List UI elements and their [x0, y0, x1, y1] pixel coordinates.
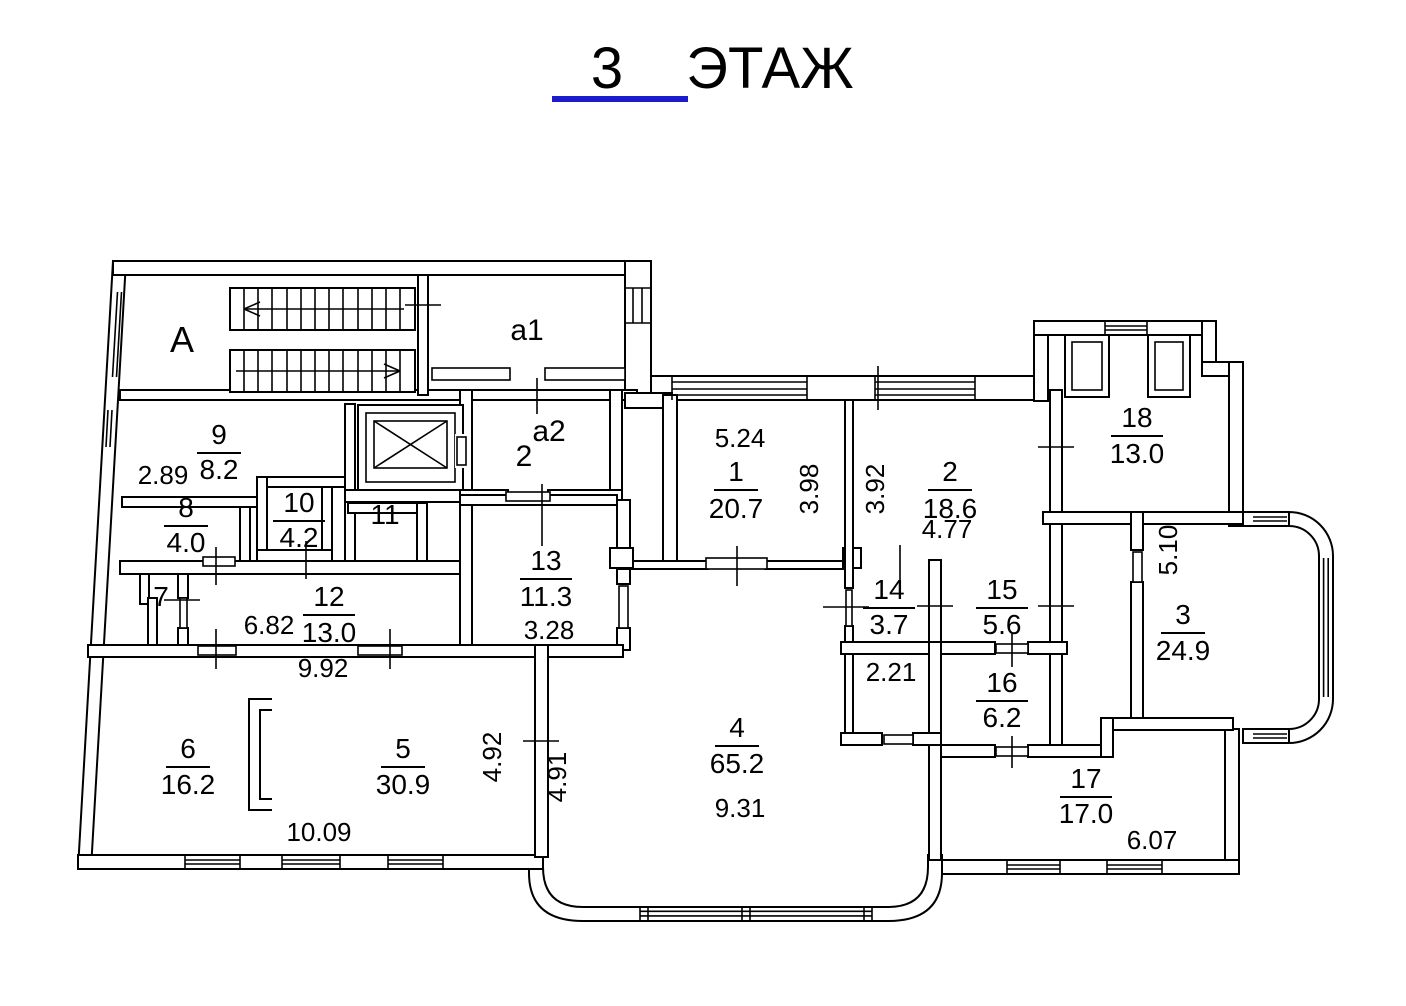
room-1-area: 20.7	[709, 493, 764, 524]
room-17-number: 17	[1070, 763, 1101, 794]
room-5-area: 30.9	[376, 769, 431, 800]
balcony-a2-label: a2	[532, 415, 565, 448]
room-13-number: 13	[530, 545, 561, 576]
room-9-number: 9	[211, 419, 227, 450]
room-15-area: 5.6	[983, 609, 1022, 640]
room-16-number: 16	[986, 667, 1017, 698]
room-15-number: 15	[986, 574, 1017, 605]
room-8-area: 4.0	[167, 527, 206, 558]
room6-partition-inner	[260, 710, 272, 799]
dim-room1-top: 5.24	[715, 423, 766, 453]
dim-room3-left: 5.10	[1153, 525, 1183, 576]
dim-hall-top: 2.21	[866, 657, 917, 687]
room-12-area: 13.0	[302, 617, 357, 648]
room-10-number: 10	[283, 487, 314, 518]
balcony-a1-label: a1	[510, 314, 543, 347]
room-8-number: 8	[178, 492, 194, 523]
room-4-area: 65.2	[710, 748, 765, 779]
room-16-area: 6.2	[983, 702, 1022, 733]
flat-number-highlight: 2	[516, 440, 533, 473]
room-3-number: 3	[1175, 599, 1191, 630]
room-11-number: 11	[370, 499, 399, 530]
room-13-area: 11.3	[520, 581, 572, 612]
room-1-number: 1	[728, 456, 744, 487]
dim-room12-bottom: 6.82	[244, 610, 295, 640]
a1-railing-right	[545, 368, 625, 380]
room-4-number: 4	[729, 712, 745, 743]
room-14-area: 3.7	[870, 609, 909, 640]
room-10-area: 4.2	[280, 522, 319, 553]
room-5-number: 5	[395, 733, 411, 764]
bay-window-band-room3	[1289, 512, 1333, 743]
door-balcony-a2	[506, 492, 550, 501]
page-title: 3 ЭТАЖ	[552, 36, 854, 101]
dim-room2-bottom: 4.77	[922, 514, 973, 544]
elevator-shaft	[358, 405, 469, 490]
floor-plan-canvas: 3 ЭТАЖ	[0, 0, 1406, 1006]
dim-room17-bottom: 6.07	[1127, 825, 1178, 855]
windows-room3-bay	[1253, 517, 1328, 738]
room-17-area: 17.0	[1059, 798, 1114, 829]
dim-room2-left: 3.92	[860, 464, 890, 515]
dim-room1-right: 3.98	[794, 464, 824, 515]
floor-word: ЭТАЖ	[686, 36, 853, 101]
door-room8	[203, 557, 235, 566]
room-3-area: 24.9	[1156, 635, 1211, 666]
dim-room5-bottom: 10.09	[286, 817, 351, 847]
stairwell-label: A	[170, 319, 194, 360]
room-18-number: 18	[1121, 402, 1152, 433]
door-room3	[1133, 552, 1142, 582]
floor-plan-page: 3 ЭТАЖ	[0, 0, 1406, 1006]
dim-corridor-bottom: 9.92	[298, 653, 349, 683]
door-room13	[619, 586, 628, 628]
dim-room9-left: 2.89	[138, 460, 189, 490]
room-6-number: 6	[180, 733, 196, 764]
door-hall	[846, 590, 852, 626]
door-room17	[884, 735, 913, 744]
staircase	[230, 288, 415, 392]
door-room7	[180, 598, 187, 628]
room-2-number: 2	[942, 456, 958, 487]
door-room5	[358, 646, 402, 655]
elevator-door	[457, 437, 466, 465]
room-7-number: 7	[153, 581, 169, 612]
dim-room4-bottom: 9.31	[715, 793, 766, 823]
room-14-number: 14	[873, 574, 904, 605]
room-9-area: 8.2	[200, 454, 239, 485]
dim-room4-left: 4.91	[542, 752, 572, 803]
a1-railing-left	[432, 368, 510, 380]
dim-room13-bottom: 3.28	[524, 615, 575, 645]
room-12-number: 12	[313, 581, 344, 612]
door-room6	[198, 646, 236, 655]
room-6-area: 16.2	[161, 769, 216, 800]
room-18-area: 13.0	[1110, 438, 1165, 469]
left-slanted-wall	[78, 261, 126, 869]
floor-number: 3	[591, 36, 623, 101]
dim-room5-right: 4.92	[477, 732, 507, 783]
